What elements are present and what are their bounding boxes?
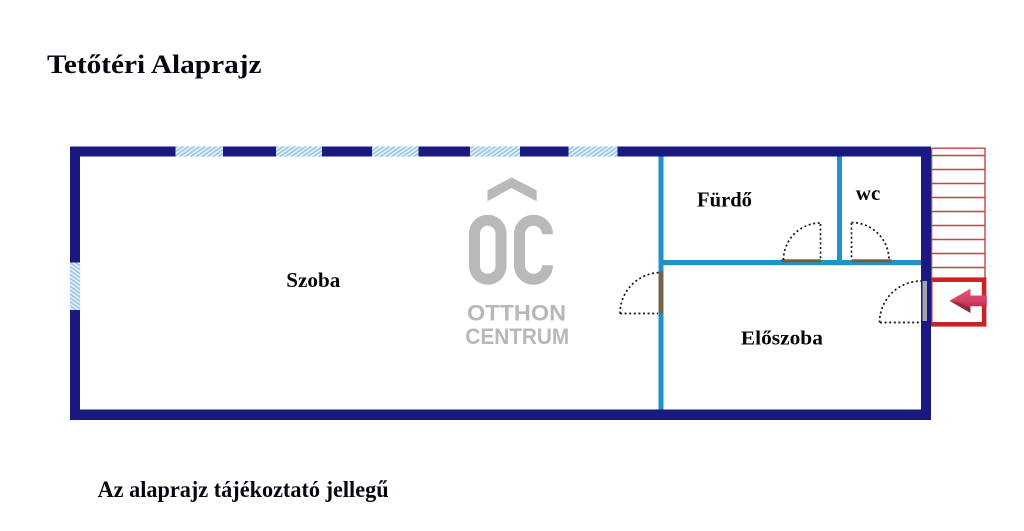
svg-text:wc: wc — [856, 181, 881, 205]
svg-text:Tetőtéri Alaprajz: Tetőtéri Alaprajz — [47, 50, 262, 79]
svg-text:CENTRUM: CENTRUM — [465, 325, 569, 350]
svg-text:Előszoba: Előszoba — [741, 328, 823, 350]
svg-text:Fürdő: Fürdő — [697, 188, 752, 212]
svg-text:Szoba: Szoba — [286, 268, 340, 292]
svg-text:Az alaprajz tájékoztató jelleg: Az alaprajz tájékoztató jellegű — [98, 477, 389, 502]
svg-text:OTTHON: OTTHON — [467, 302, 566, 327]
